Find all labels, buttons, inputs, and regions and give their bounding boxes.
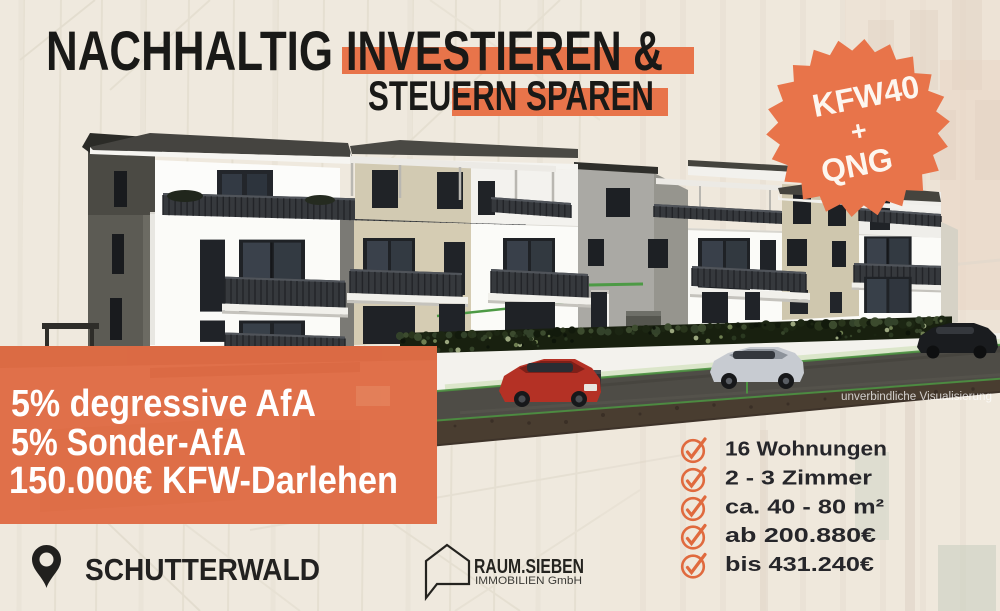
svg-text:ab 200.880€: ab 200.880€: [725, 524, 877, 547]
svg-text:unverbindliche Visualisierung: unverbindliche Visualisierung: [841, 391, 992, 403]
svg-text:bis 431.240€: bis 431.240€: [725, 553, 875, 576]
svg-text:2 - 3 Zimmer: 2 - 3 Zimmer: [725, 467, 872, 490]
svg-text:ca. 40 - 80 m²: ca. 40 - 80 m²: [725, 496, 884, 519]
svg-text:5% degressive AfA: 5% degressive AfA: [11, 383, 316, 425]
svg-text:SCHUTTERWALD: SCHUTTERWALD: [85, 552, 320, 587]
svg-text:IMMOBILIEN GmbH: IMMOBILIEN GmbH: [475, 575, 582, 587]
svg-text:STEUERN SPAREN: STEUERN SPAREN: [368, 72, 654, 119]
svg-text:5% Sonder-AfA: 5% Sonder-AfA: [11, 422, 246, 464]
svg-text:NACHHALTIG: NACHHALTIG: [46, 19, 333, 82]
svg-text:16 Wohnungen: 16 Wohnungen: [725, 438, 887, 461]
svg-text:150.000€ KFW-Darlehen: 150.000€ KFW-Darlehen: [9, 460, 398, 502]
